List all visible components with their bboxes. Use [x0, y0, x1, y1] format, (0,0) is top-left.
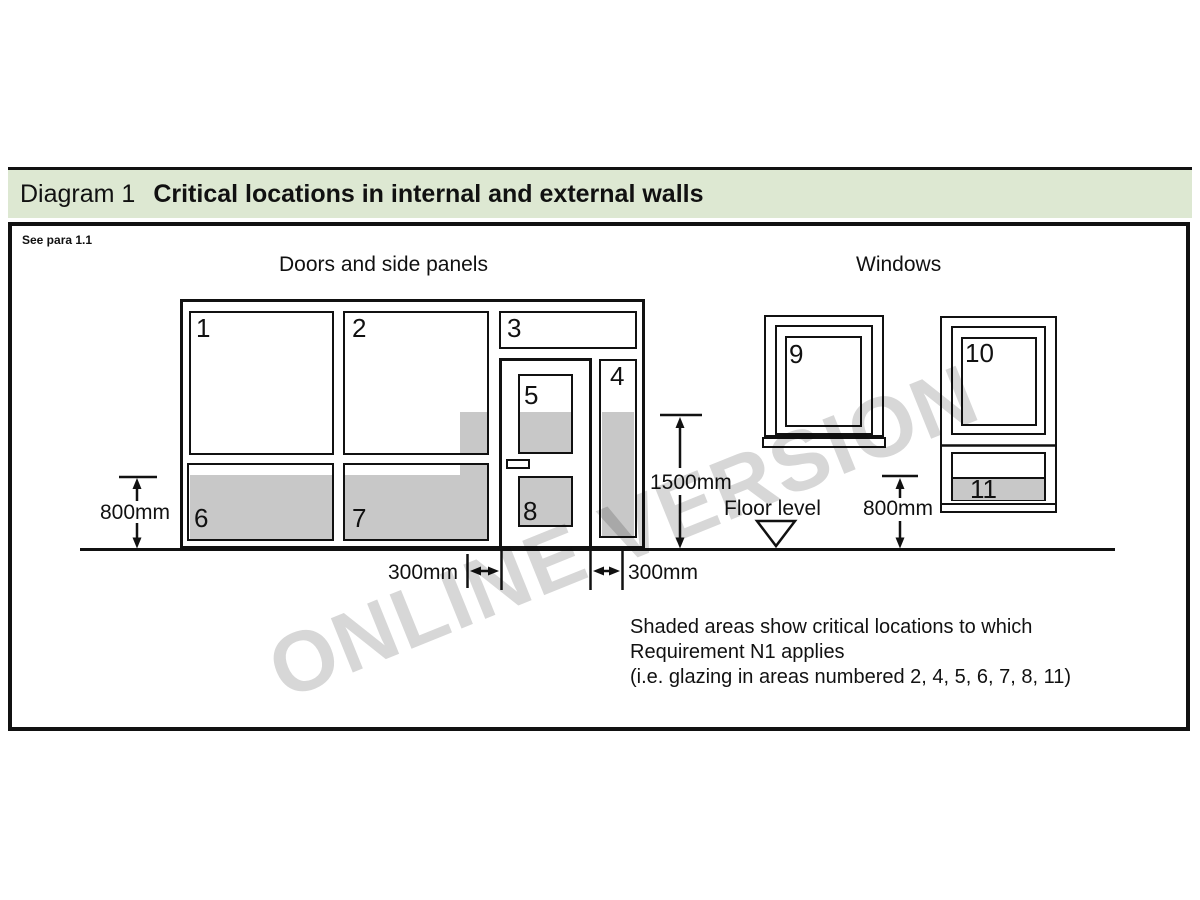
door-handle-icon — [506, 459, 530, 469]
header-bar: Diagram 1 Critical locations in internal… — [8, 170, 1192, 218]
shade-panel-4 — [602, 412, 634, 536]
shade-panel-11 — [953, 477, 1044, 500]
note-line-3: (i.e. glazing in areas numbered 2, 4, 5,… — [630, 665, 1071, 690]
panel-number-10: 10 — [965, 340, 994, 366]
panel-number-8: 8 — [523, 498, 537, 524]
panel-number-3: 3 — [507, 315, 521, 341]
section-label-doors: Doors and side panels — [279, 253, 488, 277]
panel-number-4: 4 — [610, 363, 624, 389]
note-line-2: Requirement N1 applies — [630, 640, 1071, 665]
see-para-ref: See para 1.1 — [22, 233, 92, 247]
shade-panel-2 — [460, 412, 487, 453]
diagram-number: Diagram 1 — [20, 180, 135, 209]
window-10-sill — [940, 503, 1057, 513]
shade-panel-5 — [520, 412, 571, 452]
panel-number-7: 7 — [352, 505, 366, 531]
shaded-areas-note: Shaded areas show critical locations to … — [630, 615, 1071, 690]
panel-number-2: 2 — [352, 315, 366, 341]
panel-number-9: 9 — [789, 341, 803, 367]
shade-panel-7-notch — [460, 465, 487, 476]
section-label-windows: Windows — [856, 253, 941, 277]
note-line-1: Shaded areas show critical locations to … — [630, 615, 1071, 640]
window-9-sill — [762, 437, 886, 448]
panel-number-11: 11 — [970, 476, 997, 502]
panel-number-6: 6 — [194, 505, 208, 531]
panel-number-5: 5 — [524, 382, 538, 408]
page: Diagram 1 Critical locations in internal… — [0, 0, 1200, 900]
shade-panel-6 — [190, 475, 332, 539]
diagram-title: Critical locations in internal and exter… — [153, 180, 703, 209]
panel-number-1: 1 — [196, 315, 210, 341]
panel-1 — [189, 311, 334, 455]
